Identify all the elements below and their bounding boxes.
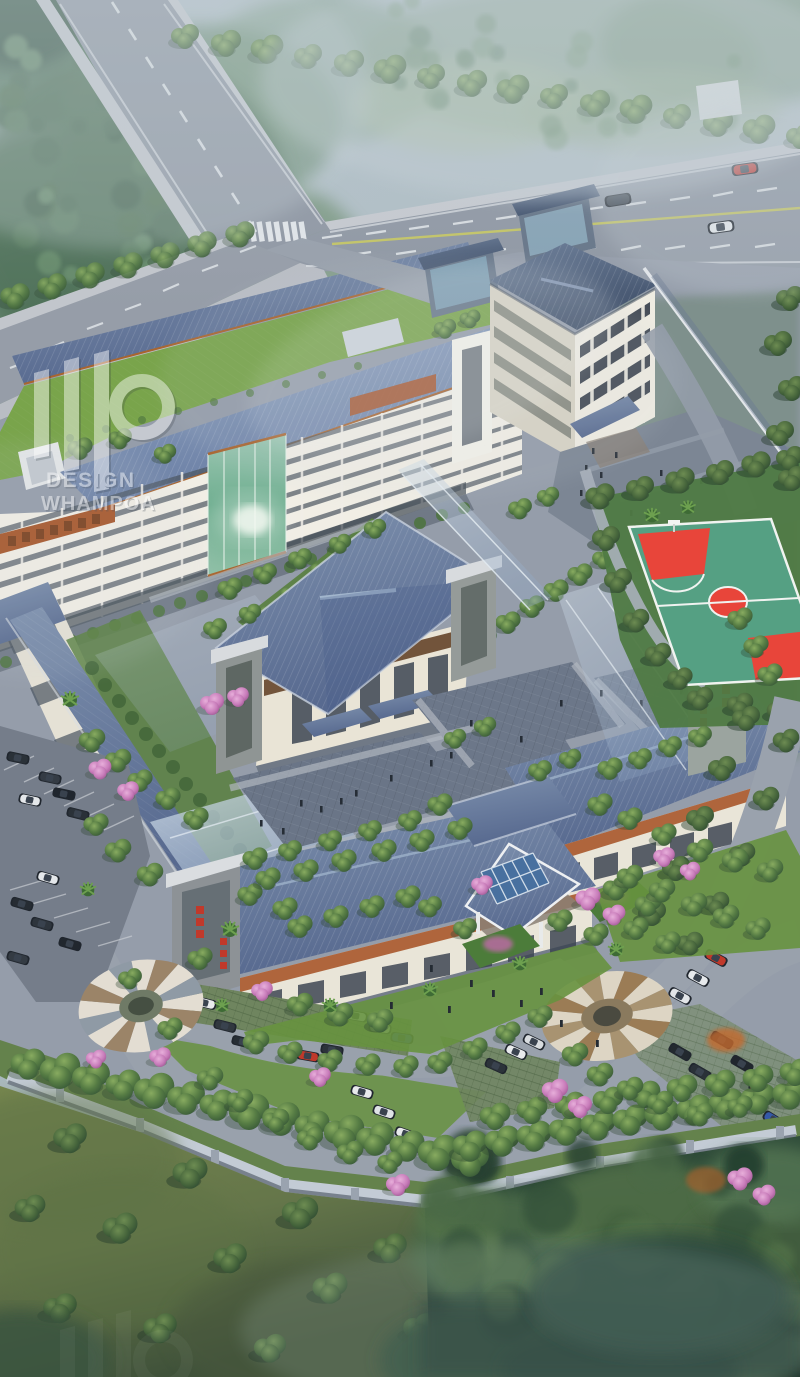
svg-text:DESIGN: DESIGN	[46, 469, 136, 492]
svg-text:WHAMPOA: WHAMPOA	[41, 493, 156, 515]
